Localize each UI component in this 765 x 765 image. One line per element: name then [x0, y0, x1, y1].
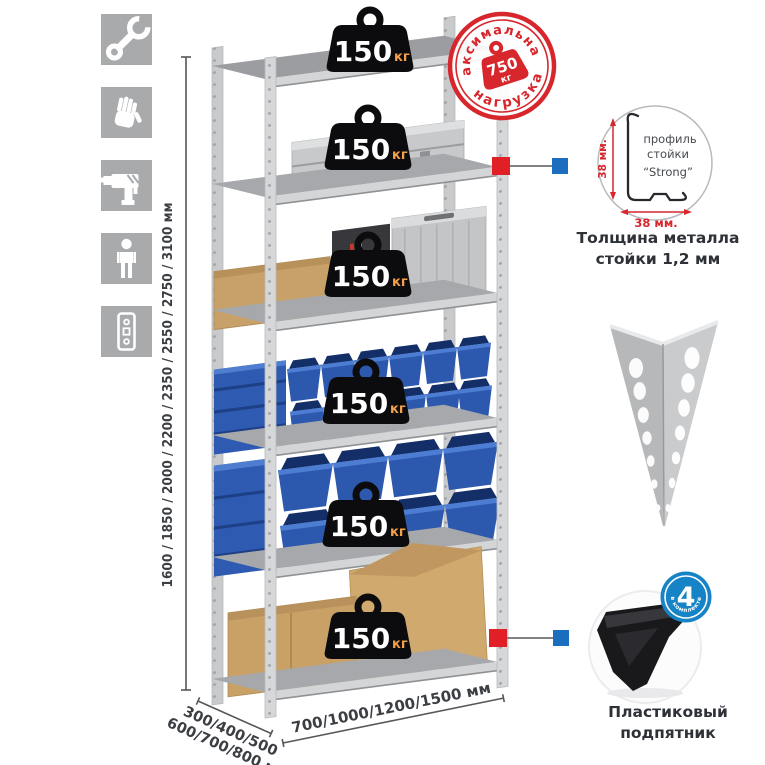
- svg-text:150: 150: [332, 133, 390, 166]
- connector-blue-square: [553, 630, 569, 646]
- product-infographic: 1600 / 1850 / 2000 / 2200 / 2350 / 2550 …: [0, 0, 765, 765]
- wrench-icon: [101, 14, 152, 65]
- svg-text:кг: кг: [392, 275, 408, 290]
- profile-label-2: стойки: [647, 147, 689, 161]
- svg-text:38 мм.: 38 мм.: [634, 216, 677, 230]
- connector-profile: [492, 157, 568, 175]
- connector-blue-square: [552, 158, 568, 174]
- infographic-canvas: 1600 / 1850 / 2000 / 2200 / 2350 / 2550 …: [0, 0, 765, 765]
- svg-text:150: 150: [334, 35, 392, 68]
- svg-text:кг: кг: [390, 525, 406, 540]
- connector-foot: [489, 629, 569, 647]
- svg-text:38 мм.: 38 мм.: [597, 139, 609, 178]
- height-dimension: [181, 57, 191, 690]
- profile-dim-horizontal: 38 мм.: [620, 209, 692, 230]
- connector-red-square: [492, 157, 510, 175]
- load-badge-2: 150 кг: [325, 108, 412, 170]
- svg-text:150: 150: [332, 622, 390, 655]
- connector-red-square: [489, 629, 507, 647]
- profile-caption-line1: Толщина металла: [577, 229, 740, 247]
- sidebar-icons: [100, 14, 153, 357]
- profile-label-1: профиль: [643, 132, 697, 146]
- profile-label-3: “Strong”: [643, 165, 693, 179]
- profile-caption-line2: стойки 1,2 мм: [596, 250, 721, 268]
- included-count-badge: 4 в комплекте: [661, 572, 712, 623]
- drill-icon: [100, 160, 153, 211]
- gloves-icon: [101, 87, 152, 138]
- svg-text:кг: кг: [392, 637, 408, 652]
- svg-text:150: 150: [330, 387, 388, 420]
- svg-text:150: 150: [332, 260, 390, 293]
- corner-post-photo: [610, 322, 718, 526]
- foot-caption-line1: Пластиковый: [608, 703, 728, 721]
- profile-detail-circle: 38 мм. 38 мм. профиль стойки “Strong”: [597, 106, 712, 230]
- svg-text:150: 150: [330, 510, 388, 543]
- svg-text:кг: кг: [392, 148, 408, 163]
- height-dimension-label: 1600 / 1850 / 2000 / 2200 / 2350 / 2550 …: [160, 203, 176, 588]
- svg-text:кг: кг: [394, 50, 410, 65]
- foot-caption-line2: подпятник: [620, 724, 716, 742]
- post-profile-icon: [101, 306, 152, 357]
- depth-dimension: 300/400/500 600/700/800 мм: [164, 690, 301, 765]
- load-badge-1: 150 кг: [327, 10, 414, 72]
- person-icon: [101, 233, 152, 284]
- svg-text:кг: кг: [390, 402, 406, 417]
